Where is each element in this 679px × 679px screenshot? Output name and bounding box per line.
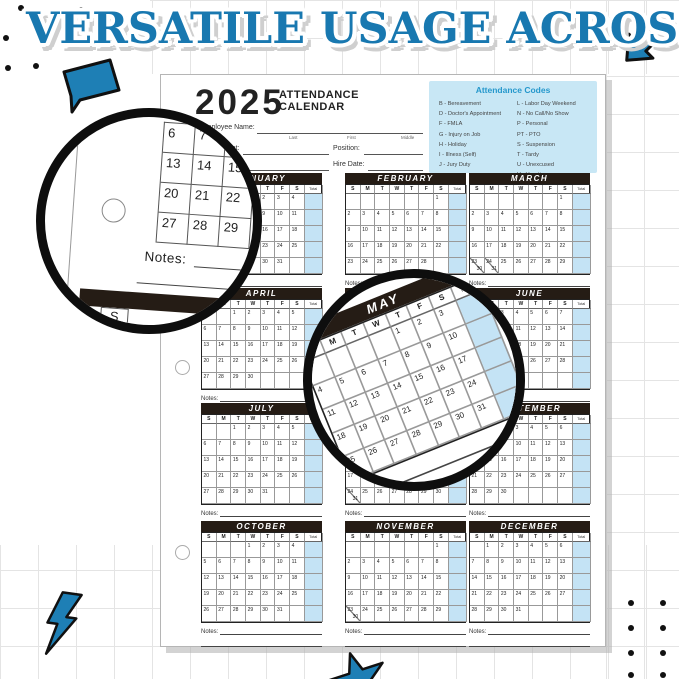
subtitle-line1: ATTENDANCE [279, 89, 359, 101]
date-number: 10 [486, 227, 492, 233]
date-number: 15 [233, 342, 239, 348]
day-header: T [261, 415, 276, 424]
day-header: T [231, 533, 246, 542]
date-number: 14 [560, 326, 566, 332]
day-header: T [231, 415, 246, 424]
day-cell [529, 488, 544, 504]
day-header: F [275, 300, 290, 309]
date-number: 5 [392, 211, 395, 217]
date-number: 31 [277, 259, 283, 265]
date-number: 24 [348, 489, 354, 495]
date-number: 4 [292, 195, 295, 201]
month-october: OCTOBERSMTWTFSTotal123456789101112131415… [201, 521, 322, 647]
day-cell: 16 [470, 242, 485, 258]
date-number: 27 [389, 437, 401, 449]
total-cell [305, 210, 323, 226]
day-cell: 1 [231, 424, 246, 440]
month-grid: SMTWTFSTotal1234567891011121314151617181… [201, 414, 322, 505]
date-number: 15 [413, 372, 425, 384]
dots-pattern [628, 650, 634, 656]
day-header: T [529, 300, 544, 309]
date-number: 26 [392, 259, 398, 265]
date-number: 27 [218, 607, 224, 613]
day-cell: 11 [529, 558, 544, 574]
dots-pattern [5, 65, 11, 71]
day-cell: 13 [543, 325, 558, 341]
day-header: S [202, 533, 217, 542]
date-number: 25 [377, 607, 383, 613]
month-may: MAYSMTWTFSTotal1234567891011121314151617… [303, 269, 525, 491]
subtitle-line2: CALENDAR [279, 101, 359, 113]
day-cell [499, 194, 514, 210]
day-header: S [290, 300, 305, 309]
day-header: T [261, 300, 276, 309]
date-number: 25 [345, 455, 357, 467]
date-number: 30 [436, 489, 442, 495]
date-number: 17 [516, 457, 522, 463]
day-cell: 9 [246, 325, 261, 341]
day-cell: 11 [375, 574, 390, 590]
day-header: F [543, 415, 558, 424]
date-number: 24 [277, 591, 283, 597]
date-number: 26 [545, 591, 551, 597]
date-number: 30 [248, 489, 254, 495]
day-cell: 6 [405, 558, 420, 574]
date-number: 7 [218, 326, 221, 332]
day-cell: 1 [558, 194, 573, 210]
date-number: 4 [277, 425, 280, 431]
day-cell: 3 [361, 210, 376, 226]
date-number: 2 [262, 195, 265, 201]
day-cell [470, 194, 485, 210]
day-cell: 17 [361, 590, 376, 606]
date-number: 19 [545, 575, 551, 581]
date-number: 13 [560, 559, 566, 565]
date-number: 2 [248, 425, 251, 431]
date-number: 30 [454, 411, 466, 423]
day-cell: 20 [202, 472, 217, 488]
date-number: 20 [530, 243, 536, 249]
date-number: 17 [362, 243, 368, 249]
month-notes: Notes: [345, 627, 466, 635]
day-cell: 9 [499, 558, 514, 574]
notes-label: Notes: [201, 629, 218, 635]
total-cell [573, 606, 591, 622]
date-number: 20 [406, 591, 412, 597]
day-cell [290, 258, 305, 274]
date-number: 8 [404, 350, 412, 361]
day-cell: 2431 [485, 258, 500, 274]
total-cell [305, 226, 323, 242]
date-number: 28 [472, 607, 478, 613]
total-header: Total [305, 533, 323, 542]
day-cell [405, 542, 420, 558]
date-number: 28 [421, 259, 427, 265]
department-line [243, 153, 329, 155]
day-cell: 14 [231, 574, 246, 590]
day-cell: 3 [275, 194, 290, 210]
star-icon [326, 650, 392, 679]
day-cell: 13 [405, 574, 420, 590]
day-cell: 13 [558, 558, 573, 574]
date-number: 8 [233, 326, 236, 332]
hire-date-label: Hire Date: [333, 161, 365, 168]
dots-pattern [660, 600, 666, 606]
date-number: 13 [218, 575, 224, 581]
day-cell: 21 [558, 341, 573, 357]
day-cell: 11 [375, 226, 390, 242]
date-number: 18 [377, 243, 383, 249]
day-cell: 13 [217, 574, 232, 590]
day-cell: 16 [261, 226, 276, 242]
date-number: 29 [432, 420, 444, 432]
date-number: 15 [436, 227, 442, 233]
dots-pattern [18, 5, 24, 11]
date-number: 19 [392, 591, 398, 597]
date-number: 5 [516, 211, 519, 217]
day-cell: 26 [514, 258, 529, 274]
date-number: 29 [248, 607, 254, 613]
day-cell: 11 [290, 558, 305, 574]
day-cell: 28 [470, 488, 485, 504]
day-cell [390, 194, 405, 210]
day-cell: 10 [485, 226, 500, 242]
day-cell: 21 [419, 242, 434, 258]
day-cell [558, 606, 573, 622]
date-number: 25 [277, 358, 283, 364]
date-number: 9 [348, 575, 351, 581]
date-number: 22 [486, 591, 492, 597]
day-cell [217, 424, 232, 440]
date-number: 11 [277, 326, 282, 332]
day-cell: 25 [275, 357, 290, 373]
day-cell [261, 373, 276, 389]
month-grid: SMTWTFSTotal1234567891011121314151617181… [469, 184, 590, 275]
total-cell [305, 488, 323, 504]
date-number: 10 [516, 559, 522, 565]
date-number: 11 [292, 211, 297, 217]
total-header: Total [573, 185, 591, 194]
day-cell [202, 542, 217, 558]
total-cell [573, 210, 591, 226]
day-header: W [514, 185, 529, 194]
day-cell: 10 [261, 440, 276, 456]
date-number: 7 [421, 559, 424, 565]
attendance-code: B - Bereavement [439, 99, 501, 109]
day-header: T [529, 415, 544, 424]
date-number: 5 [545, 543, 548, 549]
day-cell: 7 [470, 558, 485, 574]
date-number: 11 [501, 227, 506, 233]
date-number: 9 [425, 341, 433, 352]
total-cell [305, 574, 323, 590]
date-number: 3 [262, 310, 265, 316]
date-number: 5 [292, 425, 295, 431]
day-cell: 12 [290, 440, 305, 456]
day-cell: 5 [543, 542, 558, 558]
total-cell [573, 357, 591, 373]
notes-line2 [345, 635, 466, 647]
day-header: S [470, 185, 485, 194]
date-number: 12 [392, 227, 398, 233]
month-grid: SMTWTFSTotal1234567891011121314151617181… [201, 532, 322, 623]
month-notes: Notes: [469, 279, 590, 287]
day-cell: 23 [346, 258, 361, 274]
day-cell: 26 [543, 472, 558, 488]
day-cell: 8 [231, 440, 246, 456]
total-cell [449, 606, 467, 622]
day-cell: 12 [390, 226, 405, 242]
total-cell [305, 440, 323, 456]
date-number: 4 [377, 211, 380, 217]
month-notes: Notes: [201, 509, 322, 517]
day-cell: 6 [529, 210, 544, 226]
day-cell: 1 [434, 542, 449, 558]
date-number: 18 [530, 575, 536, 581]
date-number: 24 [516, 473, 522, 479]
date-number: 24 [277, 243, 283, 249]
day-cell: 18 [275, 341, 290, 357]
date-number: 22 [560, 243, 566, 249]
total-cell [305, 242, 323, 258]
date-number: 25 [292, 243, 298, 249]
day-cell: 8 [231, 325, 246, 341]
total-cell [573, 194, 591, 210]
date-number: 24 [362, 259, 368, 265]
date-number: 7 [382, 359, 390, 370]
date-number: 11 [530, 441, 535, 447]
date-number: 28 [218, 489, 224, 495]
day-cell: 15 [231, 456, 246, 472]
day-cell: 18 [290, 226, 305, 242]
date-number: 7 [421, 211, 424, 217]
date-number: 25 [377, 259, 383, 265]
date-number: 24 [362, 607, 368, 613]
date-number: 17 [277, 575, 283, 581]
date-number: 8 [486, 559, 489, 565]
day-cell: 8 [246, 558, 261, 574]
date-number: 23 [262, 591, 268, 597]
magnifier-circle-january: 678131415202122272829 Notes: S [36, 108, 262, 334]
day-cell: 21 [543, 242, 558, 258]
day-cell: 18 [499, 242, 514, 258]
speech-bubble-icon [58, 56, 124, 118]
day-cell [375, 542, 390, 558]
day-cell: 23 [261, 590, 276, 606]
day-cell: 30 [246, 373, 261, 389]
date-number: 20 [204, 358, 210, 364]
date-number: 30 [477, 266, 483, 272]
date-number: 4 [530, 425, 533, 431]
date-number: 9 [248, 441, 251, 447]
date-number: 23 [262, 243, 268, 249]
zoomed-january-cells: 678131415202122272829 [156, 122, 258, 249]
punch-hole [175, 360, 190, 375]
date-number: 7 [218, 441, 221, 447]
date-number: 15 [248, 575, 254, 581]
date-number: 11 [377, 575, 382, 581]
day-cell: 19 [390, 242, 405, 258]
day-cell: 22 [558, 242, 573, 258]
zoomed-day-cell: 8 [225, 127, 258, 159]
day-cell: 26 [390, 606, 405, 622]
zoomed-notes-label: Notes: [144, 249, 187, 267]
day-cell: 16 [499, 574, 514, 590]
date-number: 6 [406, 559, 409, 565]
day-cell: 27 [202, 488, 217, 504]
day-header: F [275, 185, 290, 194]
day-cell: 15 [434, 574, 449, 590]
date-number: 22 [233, 358, 239, 364]
day-cell: 12 [202, 574, 217, 590]
date-number: 14 [391, 381, 403, 393]
date-number: 29 [233, 489, 239, 495]
day-cell: 22 [485, 590, 500, 606]
zoomed-day-cell: 20 [159, 183, 192, 215]
attendance-codes-box: Attendance Codes B - BereavementD - Doct… [429, 81, 597, 173]
total-header: Total [573, 415, 591, 424]
date-number: 30 [501, 489, 507, 495]
date-number: 13 [560, 441, 566, 447]
day-cell: 15 [246, 574, 261, 590]
date-number: 27 [560, 473, 566, 479]
date-number: 3 [516, 543, 519, 549]
date-number: 5 [338, 376, 346, 387]
day-cell: 9 [346, 226, 361, 242]
magnifier-circle-may: MAYSMTWTFSTotal1234567891011121314151617… [303, 269, 525, 491]
day-cell: 4 [290, 194, 305, 210]
date-number: 27 [530, 259, 536, 265]
dots-pattern [628, 672, 634, 678]
date-number: 2 [348, 211, 351, 217]
date-number: 28 [472, 489, 478, 495]
day-cell: 2 [470, 210, 485, 226]
date-number: 16 [248, 457, 254, 463]
date-number: 3 [277, 195, 280, 201]
day-cell: 15 [485, 574, 500, 590]
day-cell: 19 [543, 456, 558, 472]
date-number: 27 [560, 591, 566, 597]
date-number: 25 [292, 591, 298, 597]
attendance-code: F - FMLA [439, 119, 501, 129]
date-number: 23 [248, 473, 254, 479]
day-cell: 11 [529, 440, 544, 456]
day-cell: 7 [217, 440, 232, 456]
day-header: S [290, 415, 305, 424]
notes-line2 [201, 635, 322, 647]
day-cell: 17 [361, 242, 376, 258]
day-cell: 15 [231, 341, 246, 357]
day-cell: 2330 [346, 606, 361, 622]
day-cell: 2 [261, 194, 276, 210]
date-number: 11 [530, 559, 535, 565]
day-cell: 20 [529, 242, 544, 258]
month-title: FEBRUARY [345, 173, 466, 184]
day-cell: 20 [405, 242, 420, 258]
total-cell [573, 242, 591, 258]
day-cell: 3 [514, 424, 529, 440]
day-cell [529, 194, 544, 210]
day-header: T [405, 533, 420, 542]
day-cell: 5 [390, 558, 405, 574]
day-cell: 14 [419, 574, 434, 590]
day-cell: 19 [543, 574, 558, 590]
date-number: 3 [262, 425, 265, 431]
day-cell: 2 [261, 542, 276, 558]
date-number: 16 [435, 363, 447, 375]
day-header: S [558, 415, 573, 424]
day-cell: 5 [290, 309, 305, 325]
date-number: 2 [262, 543, 265, 549]
date-number: 30 [262, 259, 268, 265]
day-cell: 24 [514, 590, 529, 606]
day-header: T [375, 533, 390, 542]
day-cell [470, 542, 485, 558]
employee-name-line [257, 132, 423, 134]
day-header: W [246, 415, 261, 424]
day-cell: 10 [514, 558, 529, 574]
zoomed-day-cell: 13 [161, 153, 194, 185]
date-number: 31 [277, 607, 283, 613]
date-number: 22 [423, 396, 435, 408]
notes-line [364, 509, 466, 517]
date-number: 8 [436, 559, 439, 565]
day-cell: 10 [275, 210, 290, 226]
day-cell: 31 [514, 606, 529, 622]
day-cell: 30 [499, 606, 514, 622]
date-number: 9 [501, 559, 504, 565]
date-number: 21 [218, 358, 224, 364]
total-cell [573, 258, 591, 274]
date-number: 23 [445, 387, 457, 399]
day-cell: 5 [290, 424, 305, 440]
date-number: 21 [421, 243, 427, 249]
date-number: 5 [530, 310, 533, 316]
date-number: 2 [416, 317, 424, 328]
zoomed-day-cell: 14 [192, 155, 225, 187]
day-cell: 26 [375, 488, 390, 504]
total-cell [573, 325, 591, 341]
day-cell: 20 [405, 590, 420, 606]
zoomed-day-cell: 15 [223, 157, 256, 189]
total-cell [573, 542, 591, 558]
date-number: 16 [348, 591, 354, 597]
day-cell: 25 [275, 472, 290, 488]
date-number: 18 [277, 342, 283, 348]
date-number: 20 [218, 591, 224, 597]
date-number: 28 [218, 374, 224, 380]
day-cell: 17 [275, 574, 290, 590]
day-cell: 24 [361, 606, 376, 622]
date-number: 1 [436, 543, 439, 549]
date-number: 8 [233, 441, 236, 447]
total-cell [449, 488, 467, 504]
notes-label: Notes: [345, 511, 362, 517]
month-title: MARCH [469, 173, 590, 184]
date-number: 16 [501, 575, 507, 581]
total-cell [573, 440, 591, 456]
date-number: 12 [545, 441, 551, 447]
date-number: 6 [530, 211, 533, 217]
date-number: 26 [292, 358, 298, 364]
date-number: 14 [218, 457, 224, 463]
date-number: 16 [348, 243, 354, 249]
day-cell: 16 [346, 590, 361, 606]
date-number: 20 [560, 457, 566, 463]
date-number: 14 [545, 227, 551, 233]
date-number: 17 [262, 342, 268, 348]
month-title: NOVEMBER [345, 521, 466, 532]
